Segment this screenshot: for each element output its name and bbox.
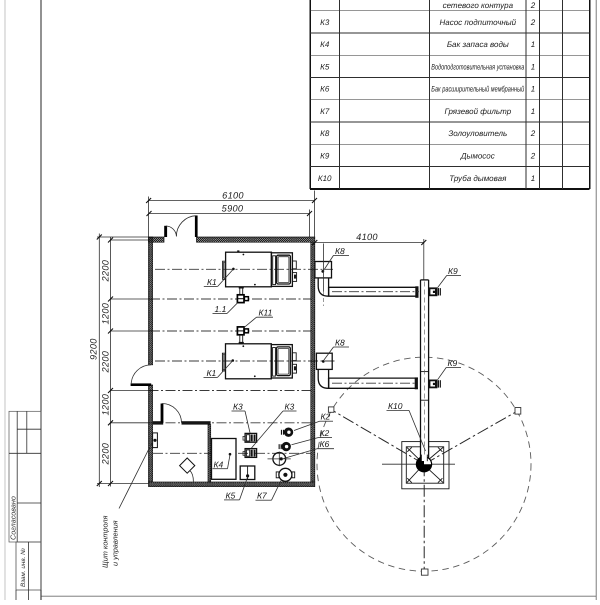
svg-text:Насос подпиточный: Насос подпиточный [440, 18, 517, 27]
svg-text:Бак запаса воды: Бак запаса воды [447, 40, 509, 49]
svg-text:К3: К3 [233, 402, 243, 412]
svg-text:и управления: и управления [111, 520, 120, 566]
svg-text:К6: К6 [320, 439, 330, 449]
svg-text:1: 1 [531, 40, 535, 49]
svg-text:1: 1 [531, 107, 535, 116]
svg-text:К8: К8 [335, 246, 345, 256]
svg-text:К9: К9 [320, 152, 330, 161]
svg-text:2: 2 [530, 152, 536, 161]
svg-text:1200: 1200 [100, 302, 110, 324]
svg-text:Дымосос: Дымосос [460, 152, 495, 161]
svg-text:Щит контроля: Щит контроля [101, 516, 110, 568]
svg-text:1: 1 [531, 85, 535, 94]
svg-text:К7: К7 [320, 107, 330, 116]
svg-text:Бак расширительный мембранный: Бак расширительный мембранный [431, 85, 524, 94]
svg-text:1: 1 [531, 63, 535, 72]
svg-text:К1: К1 [207, 277, 217, 287]
svg-text:К5: К5 [226, 490, 236, 500]
svg-text:К8: К8 [335, 338, 345, 348]
svg-text:К8: К8 [320, 129, 330, 138]
svg-text:Грязевой фильтр: Грязевой фильтр [444, 107, 511, 116]
svg-text:К2: К2 [320, 428, 330, 438]
svg-text:К4: К4 [214, 459, 224, 469]
svg-text:К3: К3 [320, 18, 330, 27]
svg-text:1200: 1200 [100, 393, 110, 415]
svg-text:К6: К6 [320, 85, 330, 94]
svg-text:1.1: 1.1 [215, 304, 227, 314]
svg-text:Водоподготовительная установка: Водоподготовительная установка [431, 63, 524, 72]
svg-text:сетевого контура: сетевого контура [443, 1, 514, 10]
svg-text:К9: К9 [448, 266, 458, 276]
svg-text:2200: 2200 [100, 259, 110, 282]
svg-text:К10: К10 [388, 401, 403, 411]
svg-text:9200: 9200 [89, 338, 99, 360]
svg-text:5900: 5900 [222, 204, 244, 214]
svg-text:К10: К10 [318, 174, 332, 183]
svg-text:2200: 2200 [100, 350, 110, 373]
svg-text:2200: 2200 [100, 442, 110, 465]
svg-text:6100: 6100 [222, 191, 244, 201]
svg-text:2: 2 [530, 18, 536, 27]
svg-text:К2: К2 [321, 412, 331, 422]
svg-text:К1: К1 [207, 368, 217, 378]
svg-text:К5: К5 [320, 63, 330, 72]
svg-text:4100: 4100 [356, 232, 378, 242]
svg-text:К11: К11 [259, 308, 273, 318]
svg-text:Труба дымовая: Труба дымовая [449, 174, 507, 183]
svg-text:К7: К7 [257, 491, 267, 501]
svg-text:Согласовано: Согласовано [9, 496, 18, 540]
svg-text:1: 1 [531, 174, 535, 183]
svg-text:К4: К4 [320, 40, 330, 49]
svg-text:Золоуловитель: Золоуловитель [448, 129, 507, 138]
svg-text:К3: К3 [285, 402, 295, 412]
svg-text:К9: К9 [448, 358, 458, 368]
svg-text:Взам. инв. №: Взам. инв. № [20, 548, 27, 587]
svg-text:2: 2 [530, 129, 536, 138]
svg-text:2: 2 [530, 1, 536, 10]
